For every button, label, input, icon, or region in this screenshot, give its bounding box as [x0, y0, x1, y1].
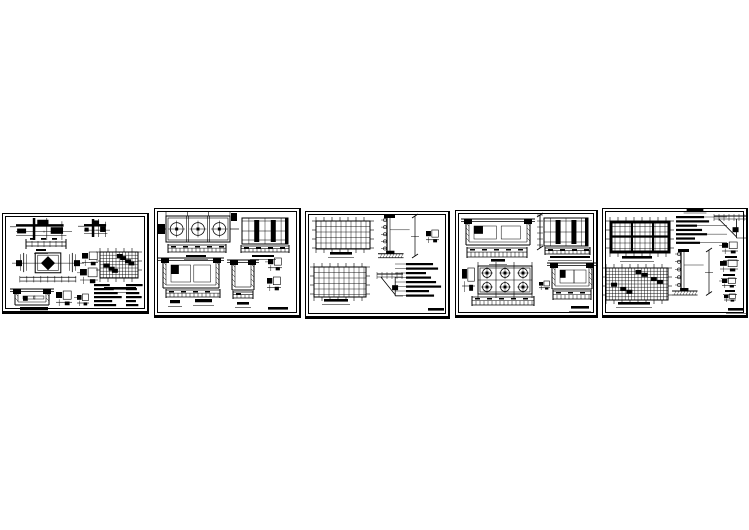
sheet-inner-frame [157, 211, 297, 313]
cad-sheet-5 [602, 208, 748, 318]
cad-sheet-4 [455, 210, 598, 318]
sheet-inner-frame [458, 213, 594, 313]
cad-sheet-2 [154, 208, 301, 318]
cad-sheet-1 [2, 213, 149, 314]
sheet-inner-frame [308, 214, 446, 314]
cad-preview-canvas [0, 0, 749, 530]
cad-sheet-3 [305, 211, 450, 319]
sheet-inner-frame [5, 216, 145, 309]
sheet-inner-frame [605, 211, 744, 313]
